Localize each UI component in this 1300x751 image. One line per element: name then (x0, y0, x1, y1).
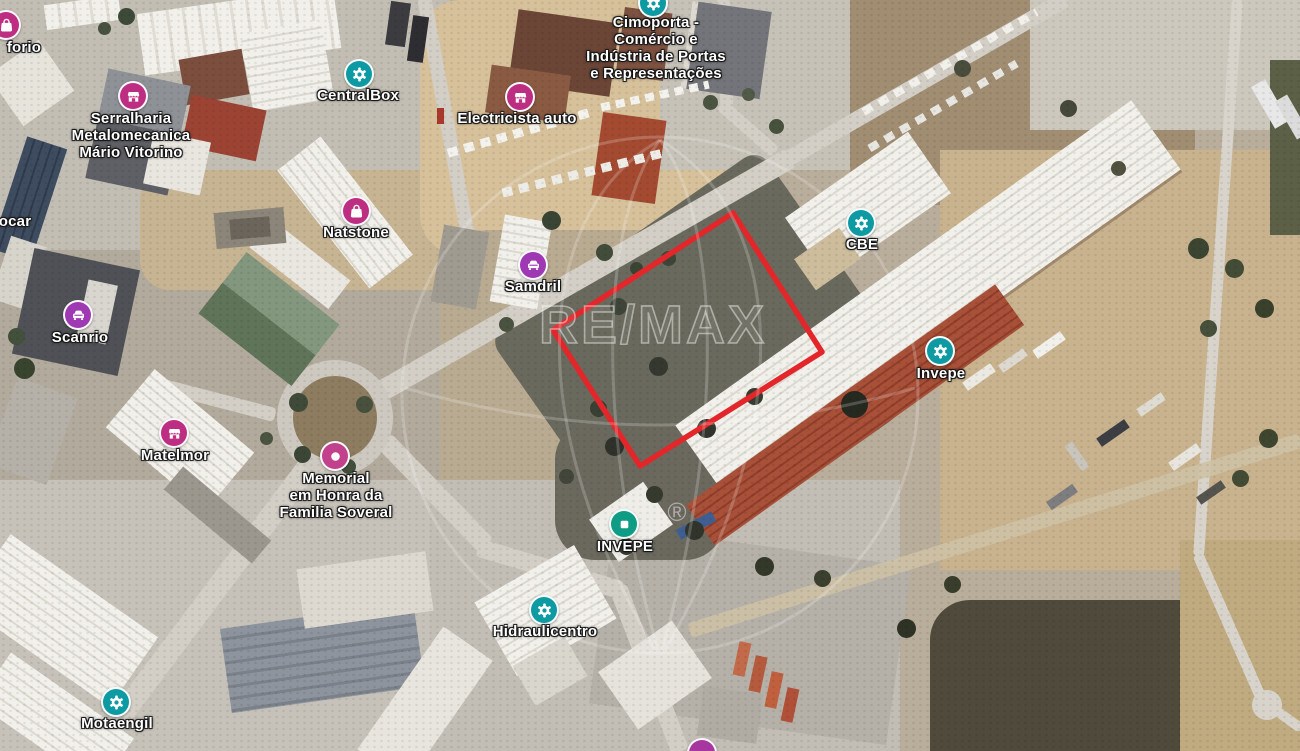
poi-samdril-label[interactable]: Samdril (505, 278, 561, 295)
gear-icon[interactable] (344, 59, 374, 89)
factory-icon[interactable] (159, 418, 189, 448)
poi-hidraulicentro-label[interactable]: Hidraulicentro (493, 623, 597, 640)
bag-icon[interactable] (0, 10, 21, 40)
bag-icon[interactable] (341, 196, 371, 226)
poi-centralbox-label[interactable]: CentralBox (317, 87, 399, 104)
poi-electricista-auto-label[interactable]: Electricista auto (457, 110, 576, 127)
poi-layer: forioSerralharia Metalomecanica Mário Vi… (0, 0, 1300, 751)
gear-icon[interactable] (101, 687, 131, 717)
factory-icon[interactable] (118, 81, 148, 111)
factory-icon[interactable] (505, 82, 535, 112)
poi-serralharia-label[interactable]: Serralharia Metalomecanica Mário Vitorin… (72, 110, 191, 161)
satellite-map[interactable]: RE/MAX ® forioSerralharia Metalomecanica… (0, 0, 1300, 751)
gear-icon[interactable] (529, 595, 559, 625)
gear-icon[interactable] (846, 208, 876, 238)
poi-matelmor-label[interactable]: Matelmor (141, 447, 209, 464)
poi-invepe-hq-label[interactable]: INVEPE (597, 538, 653, 555)
poi-motaengil-label[interactable]: Motaengil (81, 715, 153, 732)
poi-scanrio-label[interactable]: Scanrio (52, 329, 108, 346)
poi-cimoporta-label[interactable]: Cimoporta - Comércio e Indústria de Port… (586, 14, 726, 82)
poi-natstone-label[interactable]: Natstone (323, 224, 389, 241)
square-icon[interactable] (609, 509, 639, 539)
poi-forio-label[interactable]: forio (7, 39, 41, 56)
car-icon[interactable] (63, 300, 93, 330)
car-icon[interactable] (518, 250, 548, 280)
poi-invepe-label[interactable]: Invepe (917, 365, 966, 382)
poi-ocar-label[interactable]: ocar (0, 213, 31, 230)
gear-icon[interactable] (925, 336, 955, 366)
dot-icon[interactable] (320, 441, 350, 471)
poi-memorial-label[interactable]: Memorial em Honra da Familia Soveral (279, 470, 392, 521)
poi-cbe-label[interactable]: CBE (846, 236, 878, 253)
partial-icon[interactable] (687, 738, 717, 751)
